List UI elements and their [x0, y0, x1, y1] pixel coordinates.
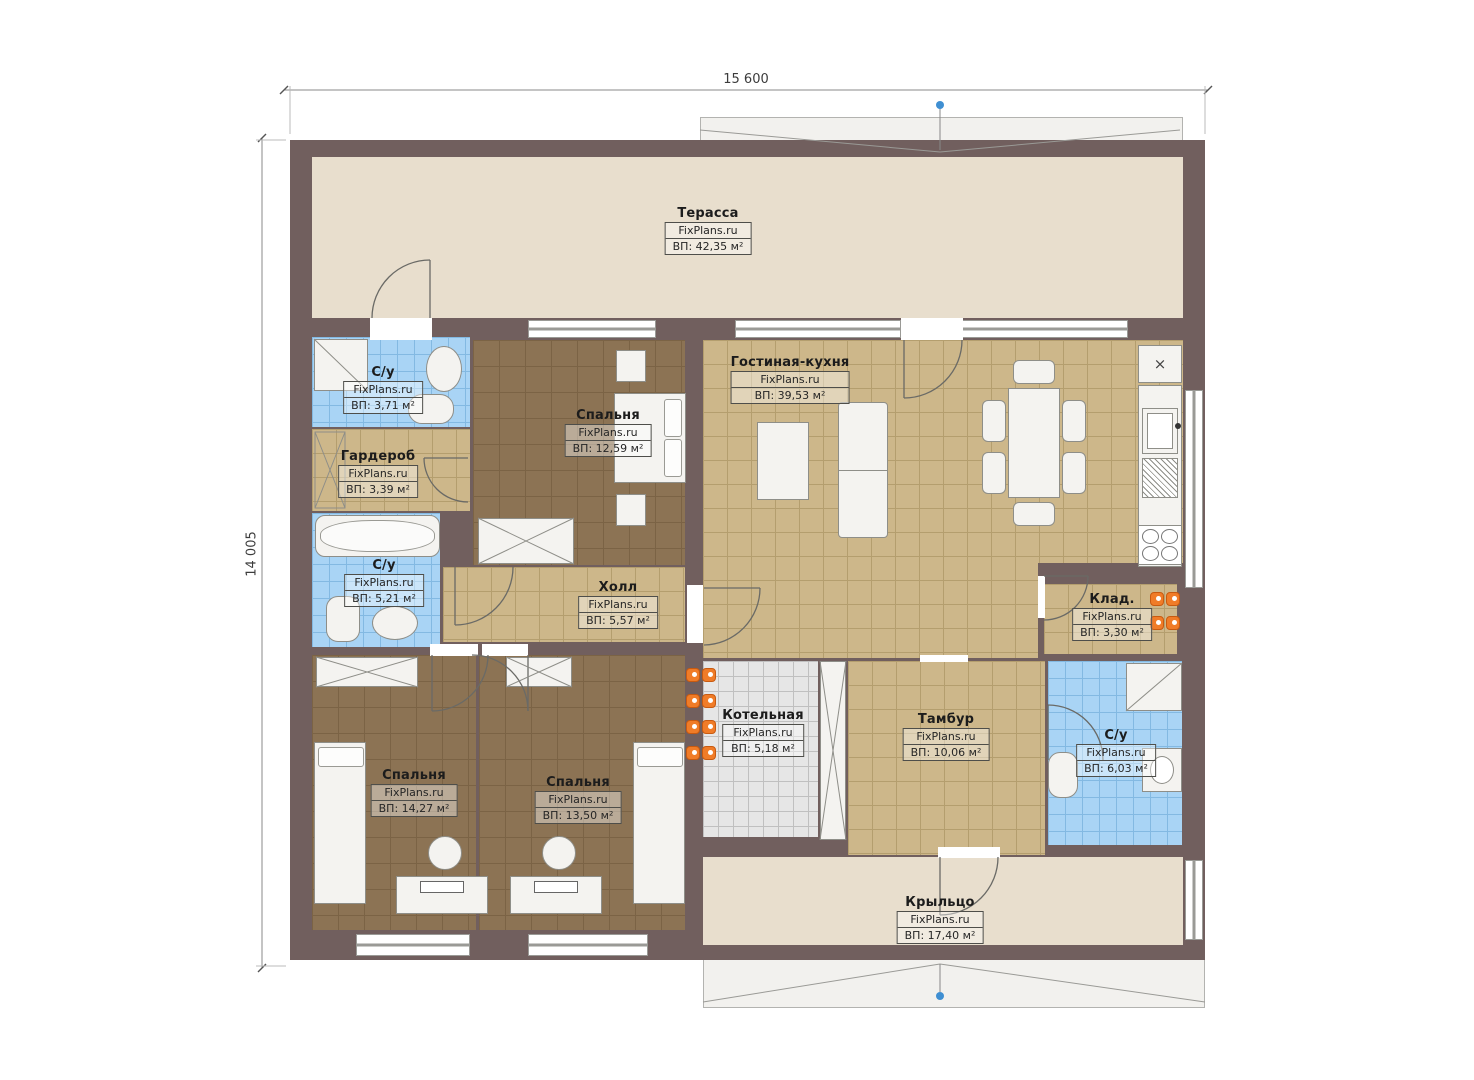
coffee-table-symbol — [757, 422, 809, 500]
faucet — [1175, 423, 1181, 429]
room-label-bedroom-top: Спальня FixPlans.ru ВП: 12,59 м² — [565, 408, 652, 457]
window — [528, 320, 656, 338]
room-name: С/у — [343, 365, 423, 380]
burner — [1161, 546, 1178, 561]
radiator-symbol — [686, 746, 716, 760]
room-area: ВП: 5,21 м² — [345, 591, 423, 606]
bathtub-symbol — [315, 515, 440, 557]
brand-watermark: FixPlans.ru — [339, 466, 417, 482]
burner — [1142, 546, 1159, 561]
brand-watermark: FixPlans.ru — [566, 425, 651, 441]
room-label-bath-left: С/у FixPlans.ru ВП: 5,21 м² — [344, 558, 424, 607]
radiator-symbol — [1150, 616, 1180, 630]
door-opening — [687, 585, 703, 643]
radiator-symbol — [1150, 592, 1180, 606]
room-label-wardrobe: Гардероб FixPlans.ru ВП: 3,39 м² — [338, 449, 418, 498]
kitchen-sink-symbol — [1142, 408, 1178, 454]
room-info-box: FixPlans.ru ВП: 3,30 м² — [1072, 608, 1152, 641]
sofa-cushion-line — [839, 470, 887, 471]
window — [528, 934, 648, 956]
desk-monitor — [420, 881, 464, 893]
door-opening — [1038, 576, 1045, 618]
room-area: ВП: 42,35 м² — [666, 239, 751, 254]
room-area: ВП: 3,71 м² — [344, 398, 422, 413]
door-opening — [938, 847, 1000, 858]
window — [962, 320, 1128, 338]
pillow — [637, 747, 683, 767]
room-info-box: FixPlans.ru ВП: 10,06 м² — [903, 728, 990, 761]
brand-watermark: FixPlans.ru — [579, 597, 657, 613]
shower-symbol — [1126, 663, 1182, 711]
room-label-bedroom-mid: Спальня FixPlans.ru ВП: 13,50 м² — [535, 775, 622, 824]
brand-watermark: FixPlans.ru — [904, 729, 989, 745]
radiator-symbol — [686, 720, 716, 734]
brand-watermark: FixPlans.ru — [723, 725, 803, 741]
room-label-porch: Крыльцо FixPlans.ru ВП: 17,40 м² — [897, 895, 984, 944]
burner — [1161, 529, 1178, 544]
toilet-symbol — [1048, 752, 1078, 798]
sink-symbol — [426, 346, 462, 392]
room-info-box: FixPlans.ru ВП: 3,39 м² — [338, 465, 418, 498]
chair-symbol — [982, 452, 1006, 494]
room-name: С/у — [1076, 728, 1156, 743]
room-name: С/у — [344, 558, 424, 573]
brand-watermark: FixPlans.ru — [344, 382, 422, 398]
wardrobe-symbol — [316, 657, 418, 687]
room-area: ВП: 13,50 м² — [536, 808, 621, 823]
room-info-box: FixPlans.ru ВП: 14,27 м² — [371, 784, 458, 817]
pillow — [664, 399, 682, 437]
room-label-tambour: Тамбур FixPlans.ru ВП: 10,06 м² — [903, 712, 990, 761]
vent-cross-glyph: × — [1154, 355, 1167, 373]
pillow — [318, 747, 364, 767]
desk-monitor — [534, 881, 578, 893]
desk-symbol — [510, 876, 602, 914]
sink-basin — [1147, 413, 1173, 449]
door-opening — [901, 318, 963, 340]
room-name: Спальня — [565, 408, 652, 423]
room-area: ВП: 10,06 м² — [904, 745, 989, 760]
room-info-box: FixPlans.ru ВП: 39,53 м² — [731, 371, 850, 404]
chair-symbol — [542, 836, 576, 870]
brand-watermark: FixPlans.ru — [666, 223, 751, 239]
bed-symbol — [633, 742, 685, 904]
room-label-bedroom-left: Спальня FixPlans.ru ВП: 14,27 м² — [371, 768, 458, 817]
room-info-box: FixPlans.ru ВП: 42,35 м² — [665, 222, 752, 255]
room-area: ВП: 5,57 м² — [579, 613, 657, 628]
wardrobe-symbol — [820, 661, 846, 840]
chair-symbol — [1062, 400, 1086, 442]
room-name: Спальня — [535, 775, 622, 790]
room-info-box: FixPlans.ru ВП: 5,18 м² — [722, 724, 804, 757]
sink-symbol — [372, 606, 418, 640]
burner — [1142, 529, 1159, 544]
window — [356, 934, 470, 956]
radiator-symbol — [686, 668, 716, 682]
room-name: Гардероб — [338, 449, 418, 464]
sofa-symbol — [838, 402, 888, 538]
room-name: Клад. — [1072, 592, 1152, 607]
room-area: ВП: 14,27 м² — [372, 801, 457, 816]
room-name: Спальня — [371, 768, 458, 783]
radiator-symbol — [686, 694, 716, 708]
door-opening — [370, 318, 432, 340]
brand-watermark: FixPlans.ru — [372, 785, 457, 801]
dimension-width-label: 15 600 — [723, 72, 769, 87]
stove-symbol — [1138, 525, 1182, 565]
wardrobe-symbol — [506, 657, 572, 687]
room-label-bath-top: С/у FixPlans.ru ВП: 3,71 м² — [343, 365, 423, 414]
room-area: ВП: 12,59 м² — [566, 441, 651, 456]
room-info-box: FixPlans.ru ВП: 13,50 м² — [535, 791, 622, 824]
window — [735, 320, 901, 338]
chair-symbol — [982, 400, 1006, 442]
brand-watermark: FixPlans.ru — [1077, 745, 1155, 761]
brand-watermark: FixPlans.ru — [1073, 609, 1151, 625]
room-name: Котельная — [722, 708, 804, 723]
room-name: Крыльцо — [897, 895, 984, 910]
room-label-hall: Холл FixPlans.ru ВП: 5,57 м² — [578, 580, 658, 629]
window — [1185, 860, 1203, 940]
door-opening — [430, 644, 478, 656]
roof-overhang-bottom — [703, 958, 1205, 1008]
room-info-box: FixPlans.ru ВП: 6,03 м² — [1076, 744, 1156, 777]
brand-watermark: FixPlans.ru — [345, 575, 423, 591]
chair-symbol — [1013, 502, 1055, 526]
bathtub-inner — [320, 520, 435, 552]
room-area: ВП: 39,53 м² — [732, 388, 849, 403]
vent-icon: × — [1138, 345, 1182, 383]
floor-plan: × — [0, 0, 1474, 1080]
room-label-terrace: Терасса FixPlans.ru ВП: 42,35 м² — [665, 206, 752, 255]
room-info-box: FixPlans.ru ВП: 17,40 м² — [897, 911, 984, 944]
room-info-box: FixPlans.ru ВП: 12,59 м² — [565, 424, 652, 457]
pillow — [664, 439, 682, 477]
room-label-boiler: Котельная FixPlans.ru ВП: 5,18 м² — [722, 708, 804, 757]
room-area: ВП: 17,40 м² — [898, 928, 983, 943]
room-area: ВП: 3,39 м² — [339, 482, 417, 497]
chair-symbol — [1062, 452, 1086, 494]
brand-watermark: FixPlans.ru — [898, 912, 983, 928]
brand-watermark: FixPlans.ru — [536, 792, 621, 808]
bed-symbol — [314, 742, 366, 904]
room-label-bath-right: С/у FixPlans.ru ВП: 6,03 м² — [1076, 728, 1156, 777]
room-info-box: FixPlans.ru ВП: 5,21 м² — [344, 574, 424, 607]
brand-watermark: FixPlans.ru — [732, 372, 849, 388]
desk-symbol — [396, 876, 488, 914]
chair-symbol — [1013, 360, 1055, 384]
nightstand-symbol — [616, 350, 646, 382]
room-area: ВП: 5,18 м² — [723, 741, 803, 756]
room-name: Холл — [578, 580, 658, 595]
door-opening — [920, 655, 968, 662]
room-name: Тамбур — [903, 712, 990, 727]
room-label-storage: Клад. FixPlans.ru ВП: 3,30 м² — [1072, 592, 1152, 641]
room-area: ВП: 6,03 м² — [1077, 761, 1155, 776]
room-name: Терасса — [665, 206, 752, 221]
room-info-box: FixPlans.ru ВП: 5,57 м² — [578, 596, 658, 629]
room-area: ВП: 3,30 м² — [1073, 625, 1151, 640]
room-name: Гостиная-кухня — [731, 355, 850, 370]
dishwasher-symbol — [1142, 458, 1178, 498]
chair-symbol — [428, 836, 462, 870]
room-label-living: Гостиная-кухня FixPlans.ru ВП: 39,53 м² — [731, 355, 850, 404]
dimension-height-label: 14 005 — [245, 531, 260, 577]
door-opening — [482, 644, 528, 656]
dining-table-symbol — [1008, 388, 1060, 498]
window — [1185, 390, 1203, 588]
wardrobe-symbol — [478, 518, 574, 564]
room-info-box: FixPlans.ru ВП: 3,71 м² — [343, 381, 423, 414]
nightstand-symbol — [616, 494, 646, 526]
